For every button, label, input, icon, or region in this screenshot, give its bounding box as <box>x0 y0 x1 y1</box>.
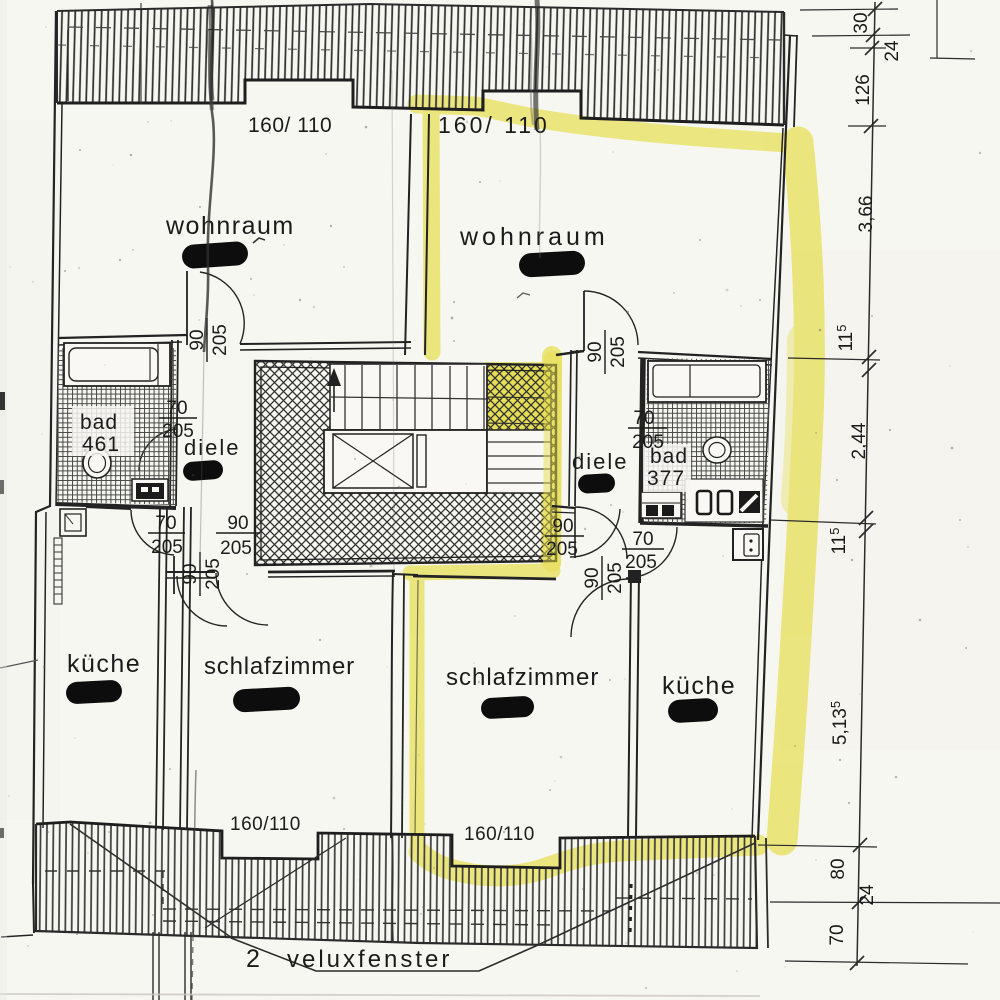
svg-text:70: 70 <box>633 408 654 429</box>
svg-text:70: 70 <box>155 513 176 534</box>
svg-text:70: 70 <box>166 398 187 419</box>
svg-text:160/110: 160/110 <box>230 814 301 835</box>
svg-text:205: 205 <box>546 539 578 560</box>
svg-text:461: 461 <box>82 433 120 456</box>
svg-text:küche: küche <box>67 650 141 678</box>
svg-text:wohnraum: wohnraum <box>165 212 295 240</box>
svg-text:70: 70 <box>632 529 653 550</box>
svg-text:24: 24 <box>857 884 878 906</box>
svg-text:wohnraum: wohnraum <box>459 223 609 251</box>
svg-text:80: 80 <box>828 858 849 879</box>
svg-text:schlafzimmer: schlafzimmer <box>446 664 599 691</box>
svg-text:205: 205 <box>220 538 252 559</box>
svg-text:2,44: 2,44 <box>849 422 870 459</box>
svg-text:205: 205 <box>625 552 657 573</box>
svg-text:90: 90 <box>227 513 248 534</box>
svg-text:377: 377 <box>647 467 685 490</box>
svg-text:205: 205 <box>162 421 194 442</box>
svg-text:diele: diele <box>572 449 628 474</box>
svg-text:205: 205 <box>632 432 664 453</box>
svg-text:205: 205 <box>605 562 626 594</box>
svg-text:205: 205 <box>210 324 231 356</box>
svg-text:veluxfenster: veluxfenster <box>287 946 452 973</box>
svg-text:24: 24 <box>882 40 903 62</box>
svg-text:30: 30 <box>851 12 872 33</box>
svg-text:126: 126 <box>853 74 874 106</box>
svg-text:90: 90 <box>585 341 606 362</box>
svg-text:160/ 110: 160/ 110 <box>438 112 550 138</box>
svg-text:90: 90 <box>582 567 603 588</box>
svg-text:160/110: 160/110 <box>464 824 535 845</box>
svg-text:küche: küche <box>662 672 736 700</box>
svg-text:205: 205 <box>608 336 629 368</box>
svg-text:205: 205 <box>151 537 183 558</box>
svg-text:schlafzimmer: schlafzimmer <box>204 653 355 680</box>
svg-text:bad: bad <box>80 411 118 434</box>
svg-text:3,66: 3,66 <box>856 196 877 233</box>
svg-text:160/ 110: 160/ 110 <box>248 114 332 137</box>
svg-text:205: 205 <box>203 558 224 590</box>
svg-text:90: 90 <box>552 516 573 537</box>
svg-text:70: 70 <box>827 924 848 945</box>
svg-text:2: 2 <box>246 945 262 973</box>
